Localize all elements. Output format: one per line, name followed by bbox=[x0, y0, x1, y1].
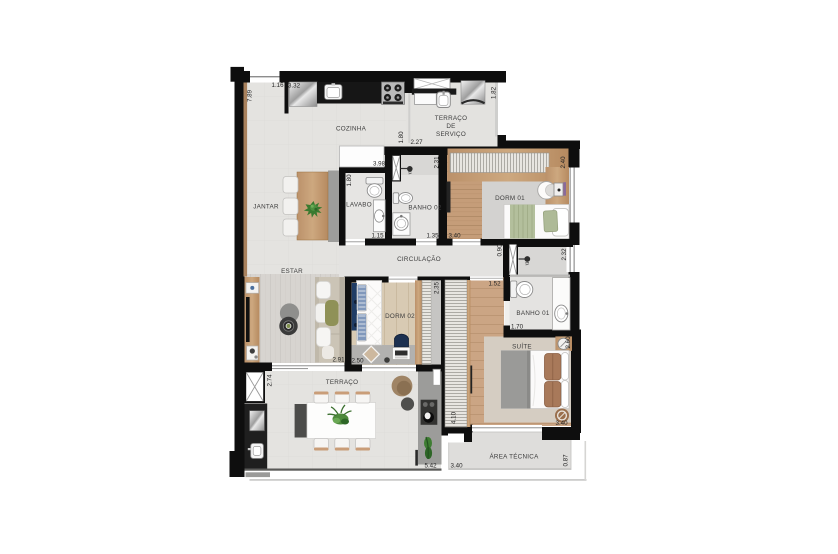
svg-text:1.82: 1.82 bbox=[491, 86, 498, 99]
svg-text:DE: DE bbox=[446, 123, 455, 130]
svg-text:1.16: 1.16 bbox=[272, 82, 285, 89]
svg-text:1.35: 1.35 bbox=[427, 233, 440, 240]
svg-text:BANHO 01: BANHO 01 bbox=[516, 310, 549, 317]
svg-text:CIRCULAÇÃO: CIRCULAÇÃO bbox=[397, 254, 441, 263]
svg-text:2.74: 2.74 bbox=[267, 374, 274, 387]
svg-text:0.90: 0.90 bbox=[497, 244, 504, 257]
svg-text:ESTAR: ESTAR bbox=[281, 268, 303, 275]
svg-text:3.40: 3.40 bbox=[556, 420, 569, 427]
svg-text:1.52: 1.52 bbox=[489, 281, 502, 288]
svg-text:0.87: 0.87 bbox=[563, 454, 570, 467]
svg-text:1.80: 1.80 bbox=[346, 174, 353, 187]
svg-text:TERRAÇO: TERRAÇO bbox=[435, 115, 468, 122]
svg-text:2.35: 2.35 bbox=[434, 281, 441, 294]
svg-text:1.80: 1.80 bbox=[398, 131, 405, 144]
svg-text:LAVABO: LAVABO bbox=[346, 202, 372, 209]
svg-text:TERRAÇO: TERRAÇO bbox=[326, 379, 359, 386]
svg-text:2.31: 2.31 bbox=[434, 156, 441, 169]
svg-text:2.91: 2.91 bbox=[333, 357, 346, 364]
svg-text:3.98: 3.98 bbox=[373, 161, 386, 168]
svg-text:DORM 02: DORM 02 bbox=[385, 313, 415, 320]
svg-text:JANTAR: JANTAR bbox=[253, 204, 279, 211]
svg-text:3.40: 3.40 bbox=[449, 233, 462, 240]
svg-text:2.27: 2.27 bbox=[411, 139, 424, 146]
svg-text:1.70: 1.70 bbox=[511, 324, 524, 331]
svg-text:2.50: 2.50 bbox=[352, 358, 365, 365]
svg-text:3.32: 3.32 bbox=[288, 83, 301, 90]
svg-text:7.89: 7.89 bbox=[247, 89, 254, 102]
svg-text:SERVIÇO: SERVIÇO bbox=[436, 131, 466, 138]
svg-text:3.40: 3.40 bbox=[451, 463, 464, 470]
svg-text:SUÍTE: SUÍTE bbox=[512, 342, 532, 351]
svg-text:2.40: 2.40 bbox=[560, 156, 567, 169]
svg-text:COZINHA: COZINHA bbox=[336, 126, 367, 133]
svg-text:4.10: 4.10 bbox=[451, 411, 458, 424]
svg-text:2.32: 2.32 bbox=[561, 248, 568, 261]
svg-text:1.15: 1.15 bbox=[372, 233, 385, 240]
svg-text:ÁREA TÉCNICA: ÁREA TÉCNICA bbox=[489, 452, 539, 461]
svg-text:2.60: 2.60 bbox=[565, 336, 572, 349]
svg-text:BANHO 02: BANHO 02 bbox=[408, 205, 441, 212]
svg-text:5.42: 5.42 bbox=[425, 463, 438, 470]
svg-text:DORM 01: DORM 01 bbox=[495, 195, 525, 202]
